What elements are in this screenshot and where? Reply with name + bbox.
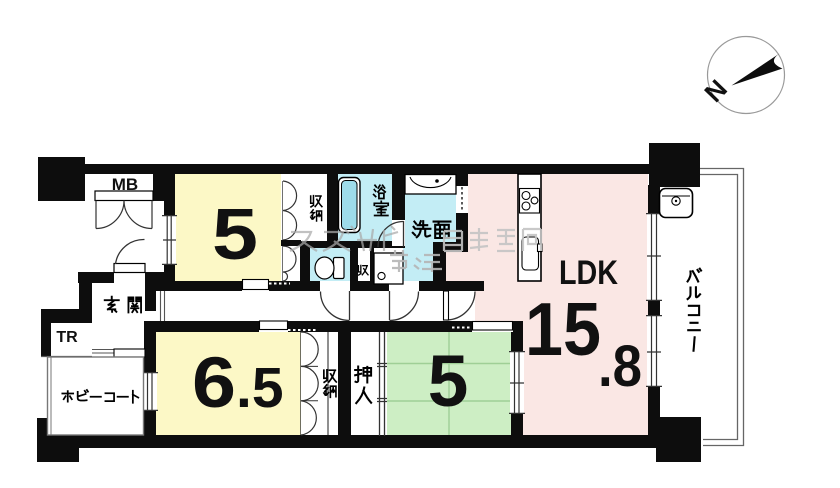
svg-text:15: 15: [525, 287, 601, 371]
svg-text:5: 5: [428, 341, 469, 422]
svg-text:.8: .8: [598, 334, 642, 399]
svg-text:.5: .5: [236, 356, 284, 420]
svg-text:5: 5: [212, 195, 258, 275]
svg-text:TR: TR: [56, 329, 78, 346]
svg-text:6: 6: [192, 344, 236, 423]
svg-text:MB: MB: [112, 175, 138, 194]
